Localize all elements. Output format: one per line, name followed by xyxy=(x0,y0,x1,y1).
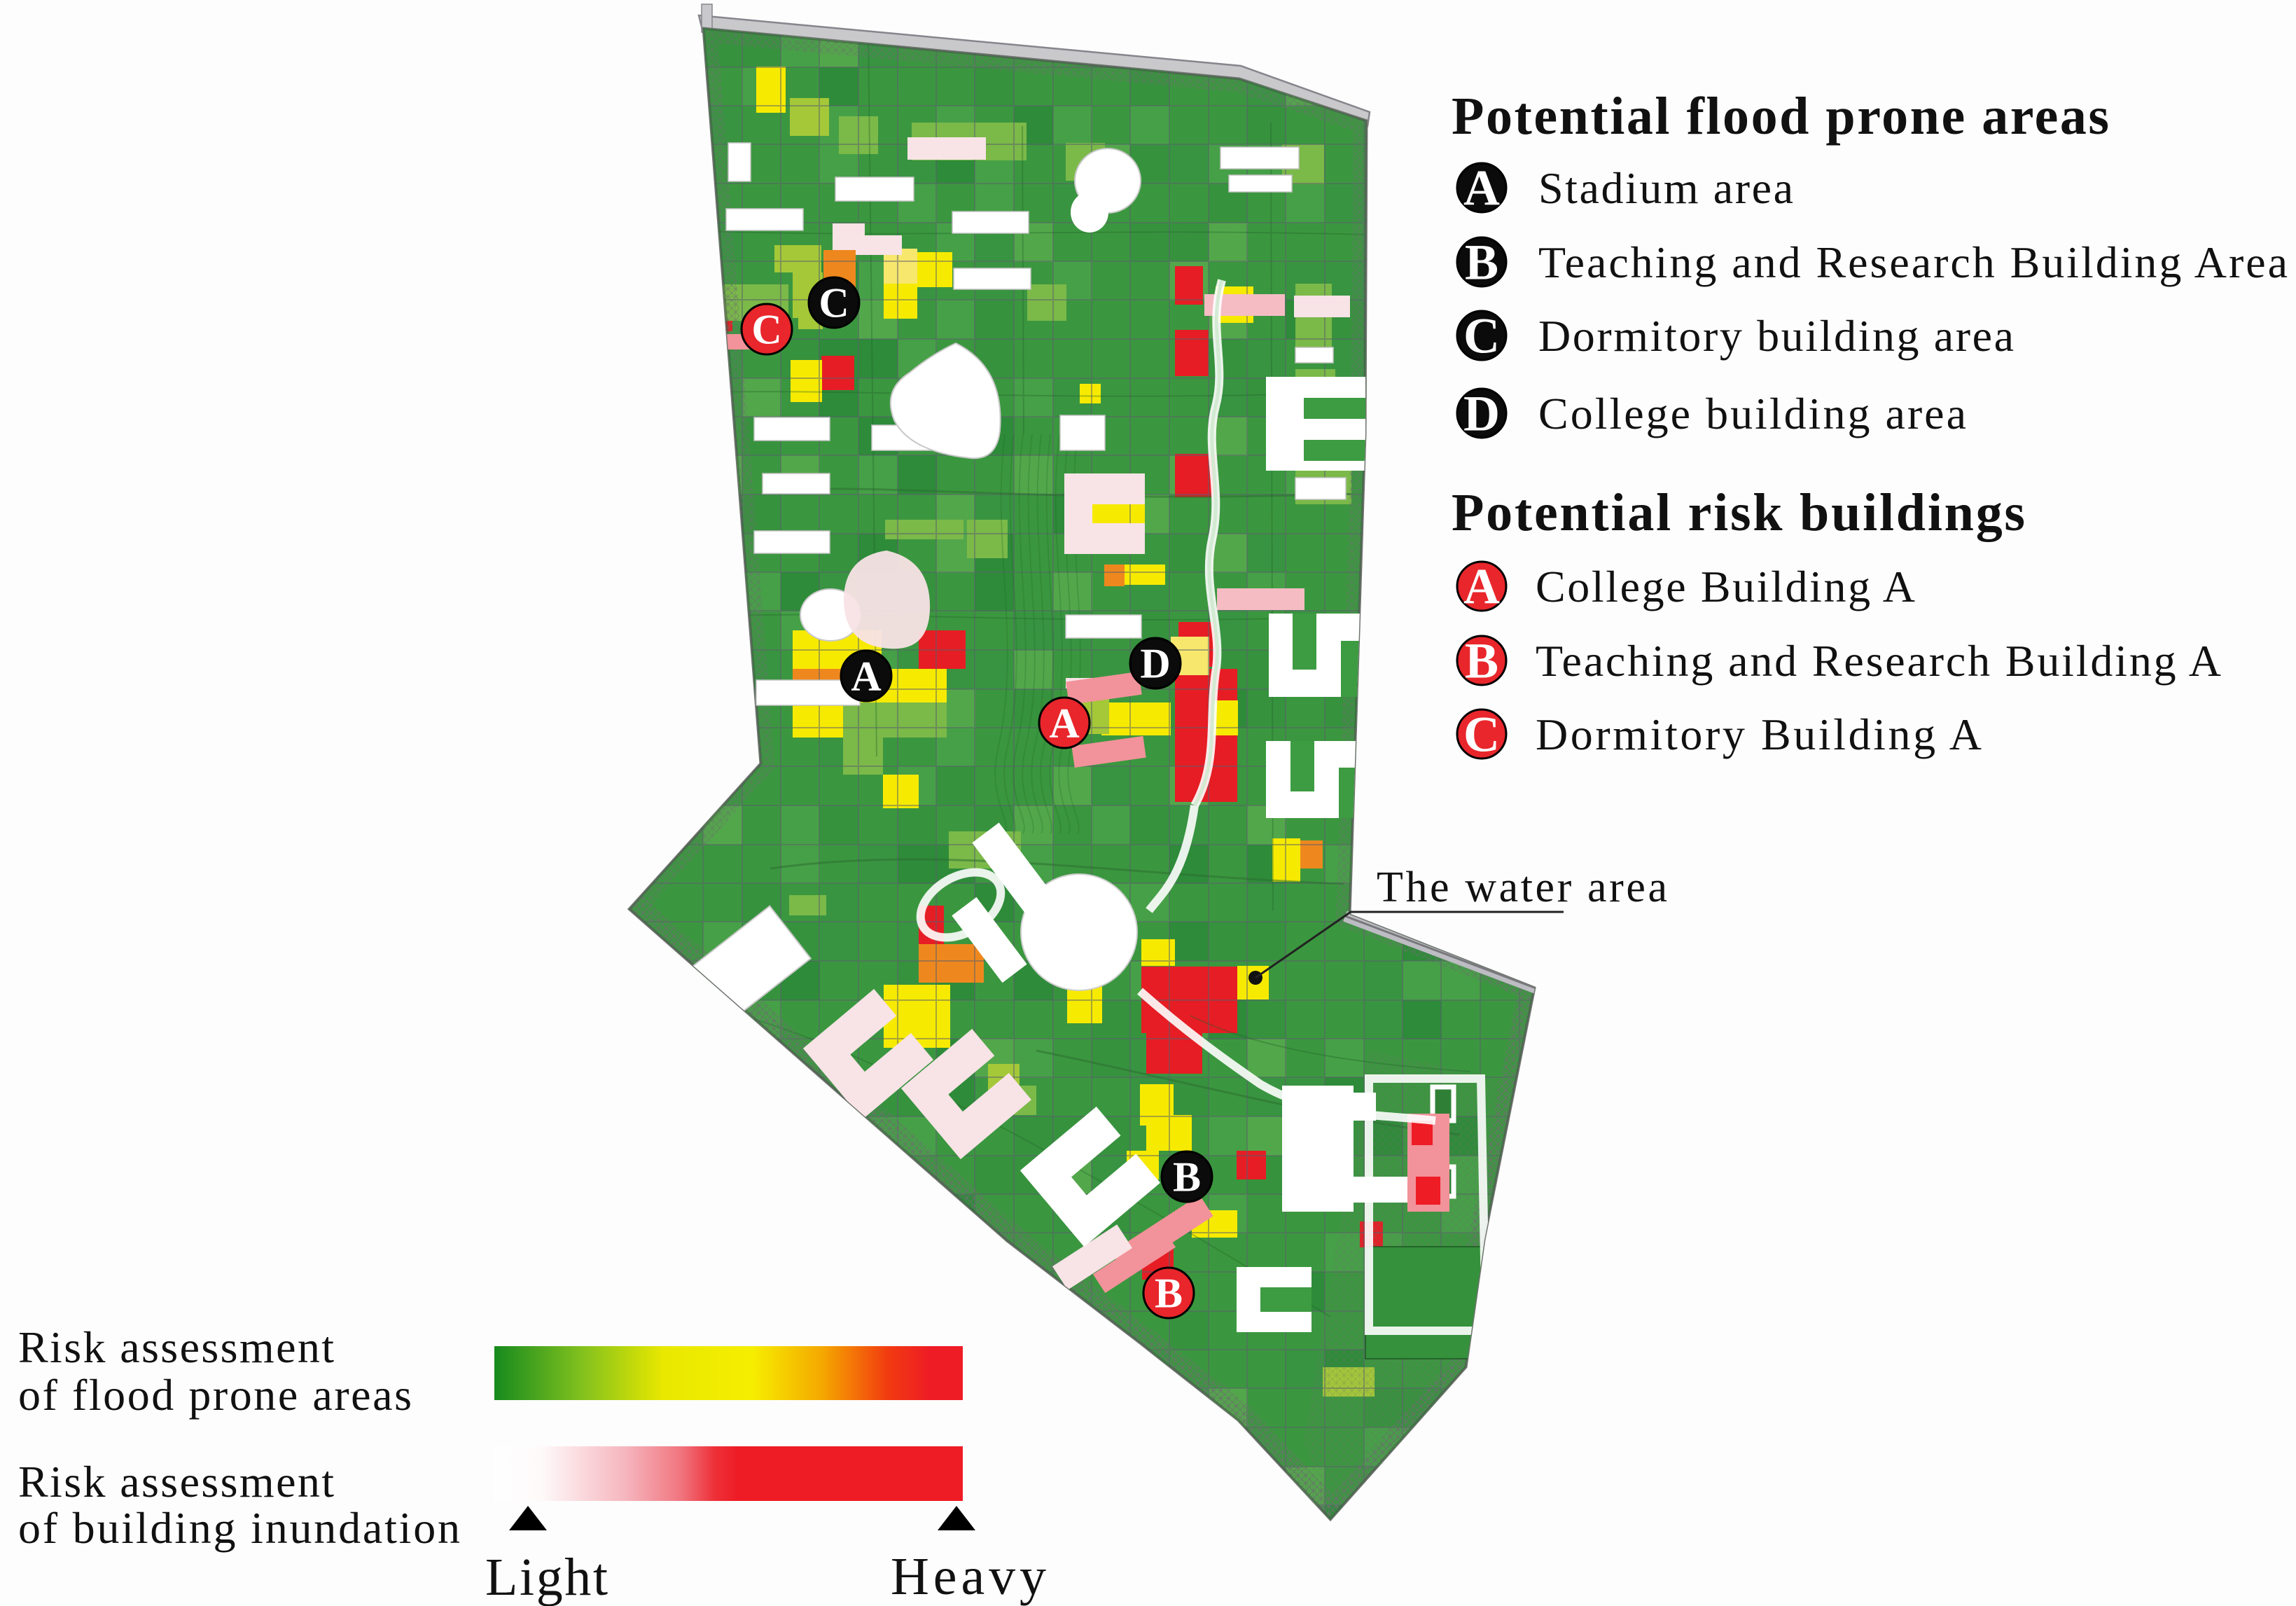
svg-text:of building inundation: of building inundation xyxy=(18,1503,460,1553)
svg-text:Risk assessment: Risk assessment xyxy=(18,1322,334,1372)
svg-text:C: C xyxy=(819,279,849,326)
svg-text:D: D xyxy=(1140,640,1170,686)
svg-text:of flood prone areas: of flood prone areas xyxy=(18,1370,412,1420)
svg-text:B: B xyxy=(1173,1154,1201,1200)
svg-text:Stadium area: Stadium area xyxy=(1538,163,1793,213)
svg-text:C: C xyxy=(1463,706,1500,762)
svg-text:A: A xyxy=(851,653,881,699)
svg-text:College Building A: College Building A xyxy=(1536,562,1915,611)
svg-text:Heavy: Heavy xyxy=(891,1547,1046,1606)
svg-text:Light: Light xyxy=(485,1548,608,1606)
svg-text:College building area: College building area xyxy=(1538,389,1966,438)
svg-text:Potential risk buildings: Potential risk buildings xyxy=(1452,483,2025,542)
svg-text:B: B xyxy=(1155,1270,1183,1316)
svg-text:B: B xyxy=(1465,632,1498,688)
svg-text:Teaching and Research Building: Teaching and Research Building Area xyxy=(1538,237,2288,287)
svg-text:C: C xyxy=(1463,307,1500,364)
svg-text:A: A xyxy=(1463,160,1500,216)
svg-text:Teaching and Research Building: Teaching and Research Building A xyxy=(1536,636,2221,686)
svg-text:Potential flood prone areas: Potential flood prone areas xyxy=(1452,87,2109,146)
svg-text:Risk assessment: Risk assessment xyxy=(18,1457,334,1507)
svg-text:B: B xyxy=(1465,234,1498,290)
svg-text:C: C xyxy=(751,306,781,352)
svg-text:A: A xyxy=(1049,700,1079,746)
svg-text:A: A xyxy=(1463,558,1500,614)
svg-text:Dormitory building area: Dormitory building area xyxy=(1538,311,2014,361)
svg-text:D: D xyxy=(1463,385,1500,441)
svg-text:The water area: The water area xyxy=(1377,864,1667,911)
svg-text:Dormitory Building A: Dormitory Building A xyxy=(1536,709,1982,759)
